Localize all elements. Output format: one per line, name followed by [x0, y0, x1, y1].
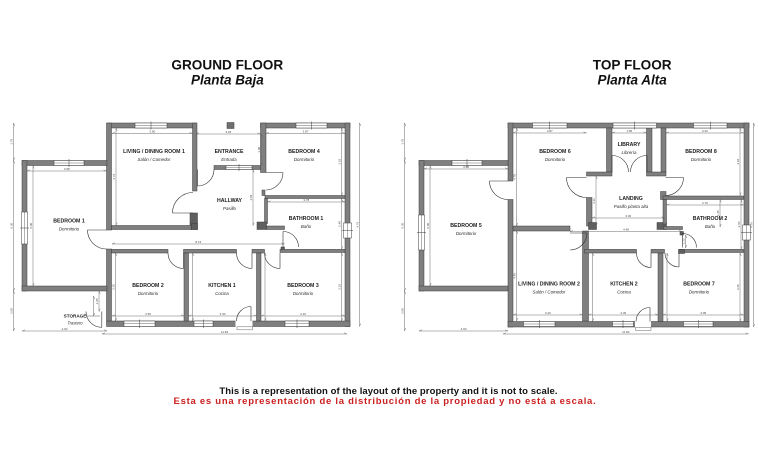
- svg-text:LIVING / DINING ROOM 1: LIVING / DINING ROOM 1: [123, 149, 185, 155]
- svg-text:1.45: 1.45: [716, 210, 720, 216]
- svg-text:3.30: 3.30: [625, 214, 631, 218]
- svg-text:1.75: 1.75: [9, 139, 13, 145]
- svg-text:Salón / Comedor: Salón / Comedor: [138, 157, 171, 162]
- svg-text:2.76: 2.76: [702, 201, 708, 205]
- svg-text:4.40: 4.40: [702, 129, 708, 133]
- svg-text:BEDROOM 5: BEDROOM 5: [450, 223, 482, 229]
- svg-text:6.30: 6.30: [400, 223, 404, 229]
- svg-text:3.40: 3.40: [545, 311, 551, 315]
- svg-text:Cocina: Cocina: [617, 290, 631, 295]
- svg-text:1.56: 1.56: [626, 129, 632, 133]
- svg-text:11.83: 11.83: [622, 330, 630, 334]
- svg-text:BATHROOM 1: BATHROOM 1: [289, 216, 324, 222]
- svg-text:4.78: 4.78: [512, 174, 516, 180]
- svg-text:LIBRARY: LIBRARY: [618, 142, 641, 148]
- svg-text:ENTRANCE: ENTRANCE: [215, 149, 244, 155]
- svg-text:3.95: 3.95: [700, 311, 706, 315]
- svg-text:1.10: 1.10: [681, 238, 685, 244]
- svg-text:BEDROOM 6: BEDROOM 6: [539, 149, 571, 155]
- svg-text:4.90: 4.90: [62, 327, 68, 331]
- svg-text:BATHROOM 2: BATHROOM 2: [693, 216, 728, 222]
- svg-text:2.00: 2.00: [400, 308, 404, 314]
- svg-text:3.90: 3.90: [149, 129, 155, 133]
- svg-text:Librería: Librería: [622, 150, 637, 155]
- svg-text:3.11: 3.11: [592, 198, 596, 204]
- svg-text:3.45: 3.45: [620, 311, 626, 315]
- svg-text:4.76: 4.76: [112, 174, 116, 180]
- svg-text:2.84: 2.84: [249, 194, 253, 200]
- svg-text:Dormitorio: Dormitorio: [294, 157, 315, 162]
- svg-text:Salón / Comedor: Salón / Comedor: [533, 290, 566, 295]
- svg-text:KITCHEN 1: KITCHEN 1: [208, 283, 235, 289]
- svg-text:6.30: 6.30: [9, 223, 13, 229]
- svg-text:HALLWAY: HALLWAY: [217, 198, 242, 204]
- svg-text:8.13: 8.13: [195, 240, 201, 244]
- svg-text:1.98: 1.98: [257, 147, 261, 153]
- svg-text:Esta es una representación de: Esta es una representación de la distrib…: [174, 396, 597, 407]
- svg-text:3.18: 3.18: [337, 159, 341, 165]
- svg-text:BEDROOM 8: BEDROOM 8: [685, 149, 717, 155]
- svg-text:Pasillo planta alta: Pasillo planta alta: [614, 204, 649, 209]
- svg-text:3.30: 3.30: [220, 312, 226, 316]
- svg-text:TOP FLOOR: TOP FLOOR: [593, 58, 672, 73]
- svg-text:Dormitorio: Dormitorio: [138, 291, 159, 296]
- svg-text:3.19: 3.19: [337, 284, 341, 290]
- svg-text:LANDING: LANDING: [619, 196, 643, 202]
- svg-text:Entrada: Entrada: [221, 157, 237, 162]
- svg-text:Planta Baja: Planta Baja: [191, 72, 264, 87]
- svg-text:Dormitorio: Dormitorio: [59, 227, 80, 232]
- svg-text:Baño: Baño: [705, 224, 716, 229]
- svg-text:3.35: 3.35: [111, 284, 115, 290]
- svg-text:3.18: 3.18: [225, 130, 231, 134]
- svg-text:STORAGE: STORAGE: [64, 314, 87, 319]
- svg-text:3.35: 3.35: [736, 284, 740, 290]
- svg-text:BEDROOM 1: BEDROOM 1: [53, 219, 85, 225]
- svg-text:3.78: 3.78: [303, 198, 309, 202]
- svg-text:4.76: 4.76: [749, 222, 753, 228]
- svg-text:Pasillo: Pasillo: [223, 206, 236, 211]
- svg-text:Dormitorio: Dormitorio: [293, 291, 314, 296]
- svg-text:3.87: 3.87: [303, 129, 309, 133]
- svg-text:LIVING / DINING ROOM 2: LIVING / DINING ROOM 2: [518, 282, 580, 288]
- svg-text:Dormitorio: Dormitorio: [545, 157, 566, 162]
- svg-text:BEDROOM 4: BEDROOM 4: [288, 149, 320, 155]
- svg-text:5.90: 5.90: [426, 223, 430, 229]
- svg-text:4.48: 4.48: [623, 227, 629, 231]
- svg-text:Baño: Baño: [301, 224, 312, 229]
- svg-text:GROUND FLOOR: GROUND FLOOR: [171, 58, 283, 73]
- svg-text:Cocina: Cocina: [215, 291, 229, 296]
- svg-text:1.05: 1.05: [95, 298, 99, 304]
- svg-text:Dormitorio: Dormitorio: [456, 231, 477, 236]
- svg-text:4.90: 4.90: [461, 327, 467, 331]
- svg-text:BEDROOM 2: BEDROOM 2: [132, 283, 164, 289]
- svg-text:4.10: 4.10: [300, 312, 306, 316]
- svg-text:3.98: 3.98: [64, 167, 70, 171]
- svg-text:4.76: 4.76: [355, 222, 359, 228]
- svg-text:BEDROOM 3: BEDROOM 3: [287, 283, 319, 289]
- svg-text:Dormitorio: Dormitorio: [691, 157, 712, 162]
- svg-text:2.00: 2.00: [9, 308, 13, 314]
- svg-text:2.60: 2.60: [737, 221, 741, 227]
- svg-text:3.18: 3.18: [736, 159, 740, 165]
- svg-text:Dormitorio: Dormitorio: [689, 290, 710, 295]
- svg-text:Planta Alta: Planta Alta: [598, 72, 668, 87]
- svg-text:KITCHEN 2: KITCHEN 2: [610, 282, 637, 288]
- svg-text:BEDROOM 7: BEDROOM 7: [683, 282, 715, 288]
- svg-text:11.83: 11.83: [221, 330, 229, 334]
- svg-text:Trastero: Trastero: [67, 321, 83, 326]
- svg-text:3.55: 3.55: [145, 312, 151, 316]
- svg-text:4.46: 4.46: [512, 273, 516, 279]
- svg-text:3.98: 3.98: [463, 165, 469, 169]
- svg-text:5.90: 5.90: [29, 223, 33, 229]
- svg-text:4.87: 4.87: [547, 129, 553, 133]
- svg-text:1.75: 1.75: [400, 139, 404, 145]
- svg-text:2.48: 2.48: [337, 221, 341, 227]
